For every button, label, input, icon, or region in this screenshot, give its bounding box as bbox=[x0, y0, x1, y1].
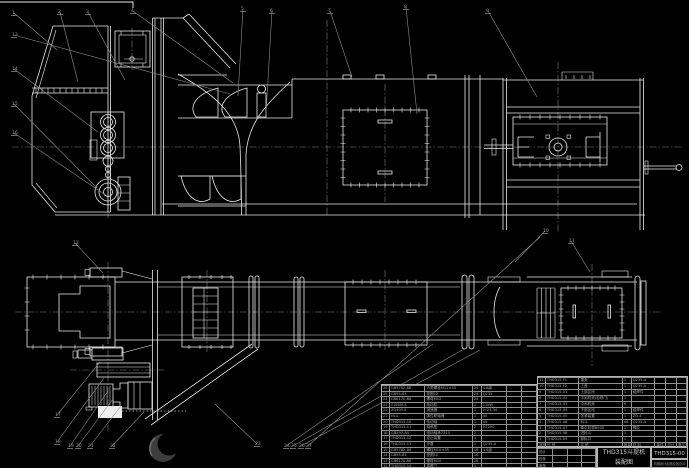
casing-flange-pair bbox=[465, 75, 480, 218]
table-cell bbox=[553, 462, 568, 468]
table-cell bbox=[553, 448, 568, 455]
cad-drawing-canvas: 1234567891011121314151617181920212223242… bbox=[0, 0, 689, 468]
throat-curve-right bbox=[246, 82, 290, 215]
item-balloon: 5 bbox=[241, 6, 244, 12]
table-cell: 12 bbox=[382, 463, 390, 468]
item-balloon: 25 bbox=[291, 443, 297, 449]
table-cell: 校核 bbox=[538, 455, 553, 462]
bucket-bolt-head bbox=[258, 85, 266, 93]
takeup-frame-ticks bbox=[520, 115, 600, 168]
drawing-title: THD315斗提机 bbox=[598, 448, 650, 458]
walkway-ticks bbox=[36, 88, 102, 93]
elevation-view bbox=[32, 14, 682, 230]
drawing-subtitle: 装配图 bbox=[598, 458, 650, 467]
item-balloon: 24 bbox=[284, 443, 290, 449]
bucket bbox=[193, 88, 218, 117]
item-balloons: 1234567891011121314151617181920212223242… bbox=[11, 4, 575, 449]
trunk-walls bbox=[153, 18, 164, 215]
ladder bbox=[193, 288, 218, 338]
handle-mark bbox=[407, 310, 416, 313]
accordion-folds bbox=[537, 288, 555, 338]
item-balloon: 27 bbox=[306, 443, 312, 449]
organization: 机械设计制造及其自动化 bbox=[651, 459, 688, 468]
centerlines bbox=[12, 20, 683, 432]
item-balloon: 26 bbox=[299, 443, 305, 449]
item-balloon: 2 bbox=[58, 9, 61, 15]
takeup-mechanism bbox=[484, 132, 682, 174]
table-cell bbox=[582, 455, 596, 462]
table-row: 审核 bbox=[538, 462, 596, 468]
table-cell bbox=[568, 462, 583, 468]
reducer-fins bbox=[92, 386, 110, 405]
plan-flange-support bbox=[153, 270, 158, 420]
plan-boot-plates bbox=[527, 277, 632, 346]
takeup-screw bbox=[644, 166, 676, 169]
table-row: 设计 bbox=[538, 448, 596, 455]
discharge-chute-slant bbox=[178, 14, 236, 75]
item-balloon: 10 bbox=[543, 228, 549, 234]
leader-path bbox=[14, 7, 590, 446]
handle-mark bbox=[608, 305, 611, 318]
bearing-bracket bbox=[91, 112, 124, 158]
motor bbox=[98, 406, 122, 418]
table-cell: 1 bbox=[473, 463, 482, 468]
head-pulley-assembly bbox=[90, 112, 130, 210]
plan-door bbox=[561, 288, 622, 338]
item-balloon: 22 bbox=[110, 443, 116, 449]
item-balloon: 17 bbox=[55, 412, 61, 418]
watermark-logo bbox=[149, 433, 181, 463]
stub-flange-top bbox=[90, 268, 122, 277]
drive-unit bbox=[73, 348, 186, 418]
table-cell bbox=[507, 463, 522, 468]
parts-table-standard: 26GB5782-86六角螺栓M12×45244.8级25GB95-85垫圈12… bbox=[381, 384, 538, 468]
bucket bbox=[212, 176, 241, 201]
frame-corner-line bbox=[0, 2, 133, 8]
item-balloon: 11 bbox=[569, 238, 575, 244]
head-top-cover bbox=[115, 31, 150, 67]
item-balloon: 21 bbox=[88, 443, 94, 449]
item-balloon: 16 bbox=[12, 130, 18, 136]
flange-plate-stack bbox=[118, 177, 130, 210]
table-cell bbox=[568, 455, 583, 462]
item-balloon: 12 bbox=[73, 240, 79, 246]
sheet-frame bbox=[0, 2, 133, 8]
item-balloon: 1 bbox=[12, 10, 15, 16]
handle-mark bbox=[573, 305, 576, 318]
plan-door-ticks bbox=[559, 286, 625, 341]
item-balloon: 3 bbox=[86, 9, 89, 15]
table-cell bbox=[568, 448, 583, 455]
head-walkway-band bbox=[32, 88, 108, 93]
table-cell bbox=[582, 462, 596, 468]
item-balloon: 23 bbox=[255, 441, 261, 447]
item-balloon: 9 bbox=[486, 8, 489, 14]
item-balloon: 15 bbox=[12, 101, 18, 107]
item-balloon: 19 bbox=[68, 443, 74, 449]
item-balloon: 13 bbox=[12, 32, 18, 38]
parts-table-main: 11THD315-F1罩壳1Q235-A10THD315-F2上盖1Q235-A… bbox=[537, 376, 688, 447]
table-cell bbox=[553, 455, 568, 462]
item-balloon: 18 bbox=[55, 439, 61, 445]
inlet-chute-diagonals bbox=[145, 344, 258, 425]
table-cell bbox=[582, 448, 596, 455]
table-cell: 审核 bbox=[538, 462, 553, 468]
head-right-wall bbox=[108, 26, 111, 212]
item-balloon: 14 bbox=[12, 66, 18, 72]
section-b-ticks bbox=[353, 280, 416, 348]
input-bracket bbox=[113, 383, 128, 408]
boot-top-lip bbox=[562, 72, 593, 80]
plan-flange-capsules bbox=[249, 275, 646, 350]
item-balloon: 6 bbox=[270, 8, 273, 14]
coupling bbox=[92, 348, 123, 360]
item-balloon: 7 bbox=[328, 8, 331, 14]
table-cell: THD315-14 bbox=[390, 463, 426, 468]
boot-walls bbox=[503, 78, 644, 230]
table-row: 12THD315-14观察门1 bbox=[382, 463, 537, 468]
signature-grid: 设计校核审核 bbox=[537, 447, 597, 468]
table-cell: 观察门 bbox=[425, 463, 472, 468]
title-block: THD315斗提机 装配图 bbox=[597, 447, 651, 468]
table-cell bbox=[522, 463, 537, 468]
head-casing-inner-chamfer bbox=[36, 30, 57, 208]
table-cell: 设计 bbox=[538, 448, 553, 455]
item-balloon: 8 bbox=[404, 4, 407, 10]
item-balloon: 20 bbox=[76, 443, 82, 449]
fabric-boot-curve bbox=[494, 287, 500, 338]
belt-rails bbox=[178, 85, 292, 206]
table-row: 校核 bbox=[538, 455, 596, 462]
table-cell bbox=[482, 463, 508, 468]
handle-mark bbox=[357, 310, 366, 313]
leader-lines bbox=[14, 7, 590, 446]
bucket bbox=[181, 176, 210, 201]
item-balloon: 4 bbox=[131, 8, 134, 14]
plan-section-b bbox=[345, 282, 427, 345]
bucket bbox=[222, 88, 247, 117]
screw-end bbox=[676, 165, 682, 171]
drawing-number: THD315-00 bbox=[651, 447, 688, 459]
bucket-bolt bbox=[257, 93, 266, 117]
